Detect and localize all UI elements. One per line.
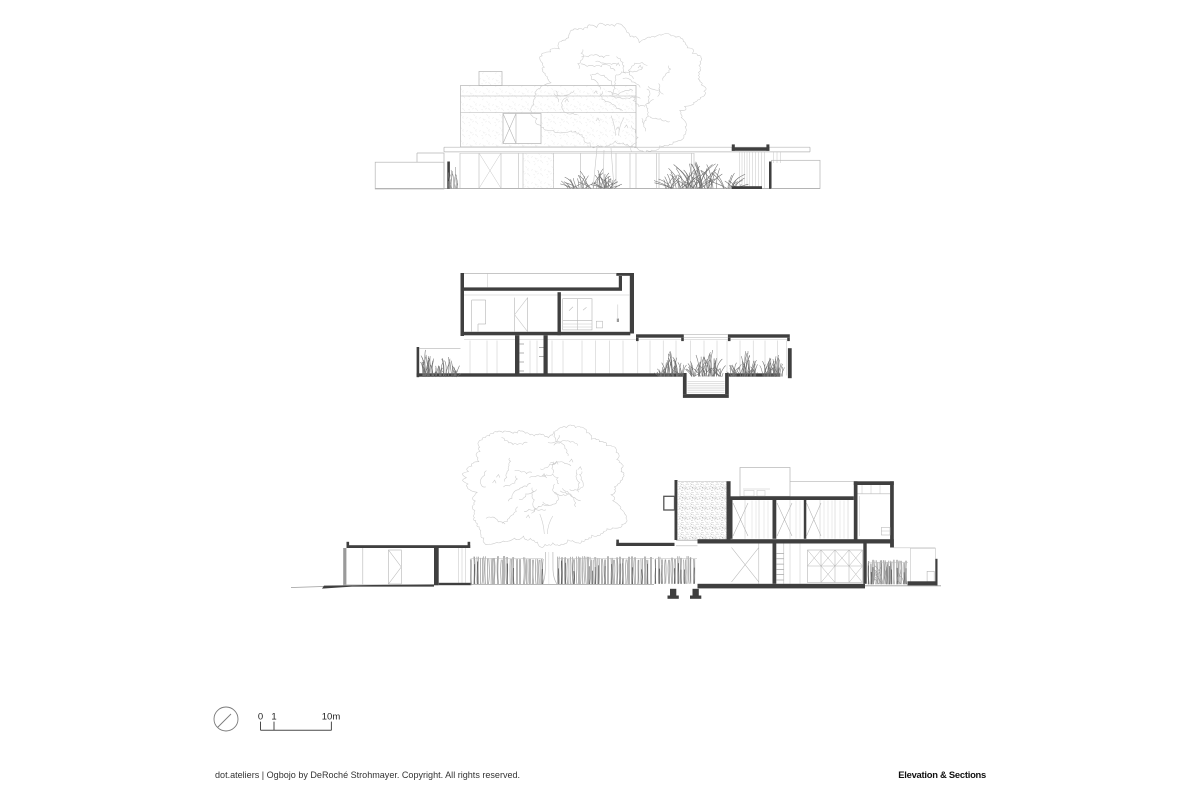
- svg-text:dot.ateliers | Ogbojo by DeRoc: dot.ateliers | Ogbojo by DeRoché Strohma…: [215, 770, 520, 780]
- svg-text:10m: 10m: [322, 712, 341, 723]
- svg-text:Elevation & Sections: Elevation & Sections: [898, 769, 986, 780]
- svg-text:0: 0: [258, 712, 263, 723]
- svg-text:1: 1: [271, 712, 276, 723]
